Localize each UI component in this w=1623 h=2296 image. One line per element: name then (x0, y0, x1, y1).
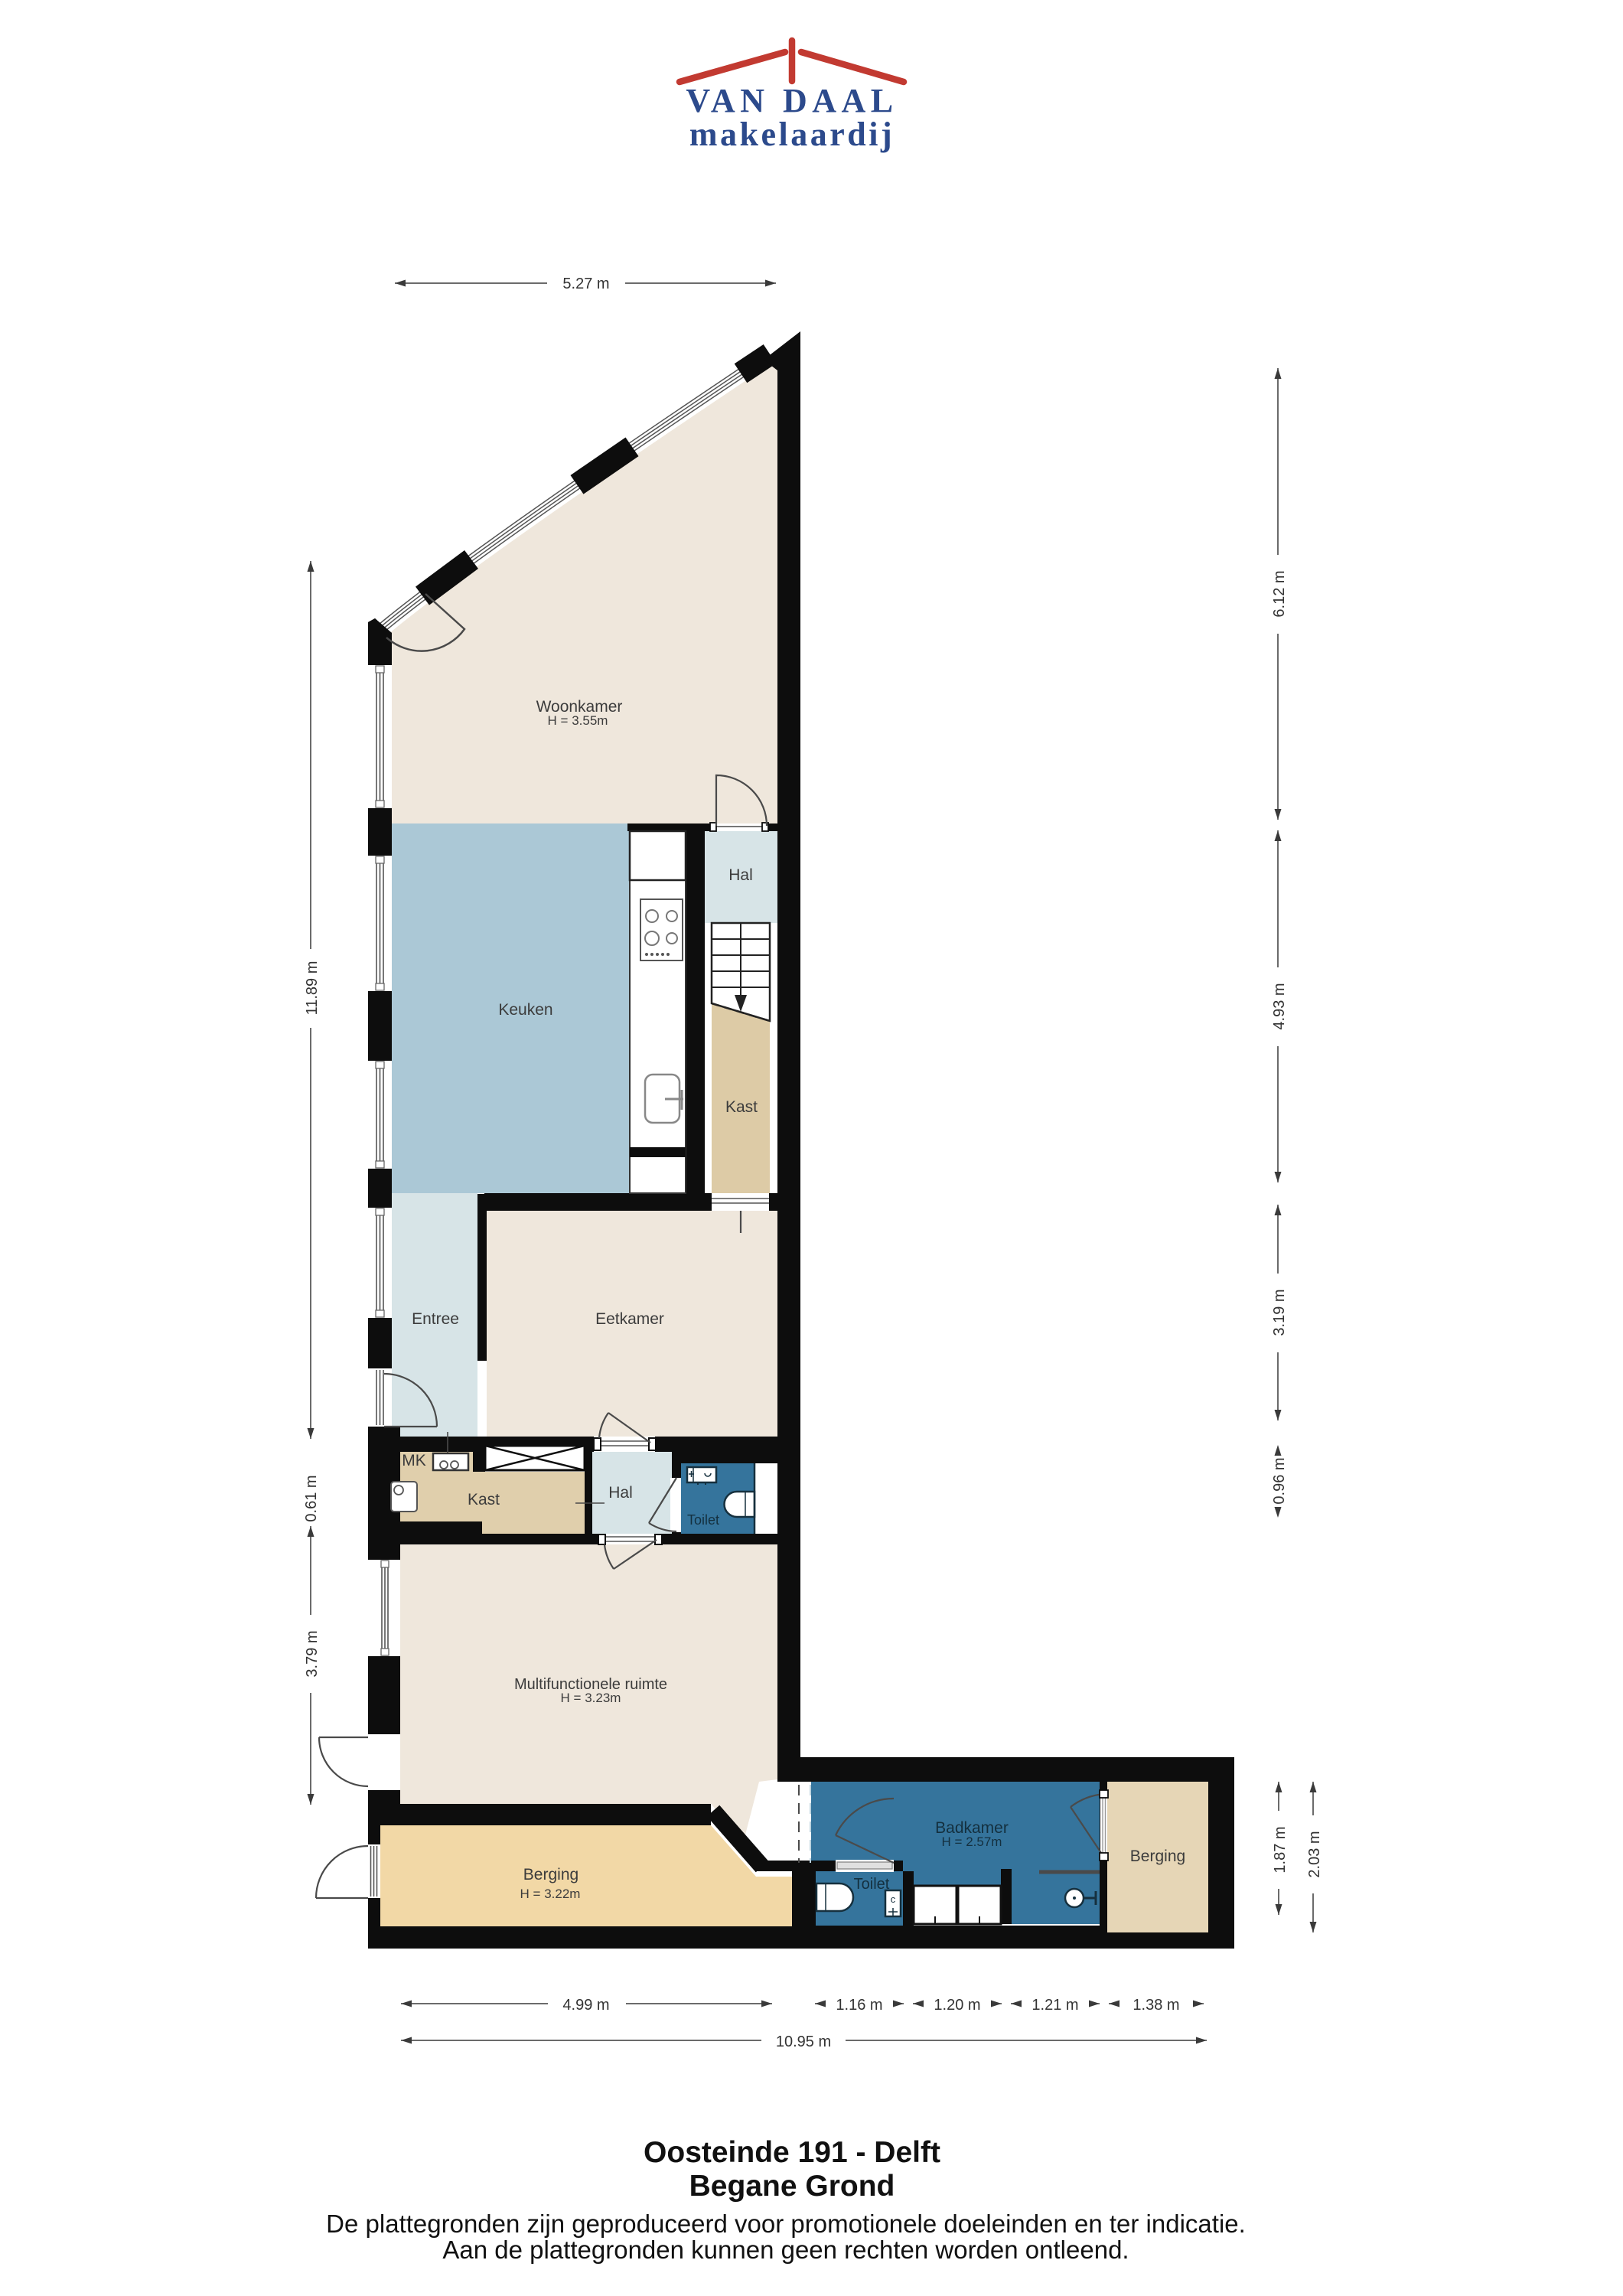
svg-text:5.27 m: 5.27 m (562, 276, 609, 292)
svg-text:Eetkamer: Eetkamer (595, 1310, 664, 1328)
svg-text:6.12 m: 6.12 m (1271, 570, 1288, 617)
svg-text:2.03 m: 2.03 m (1306, 1831, 1323, 1877)
svg-text:3.79 m: 3.79 m (304, 1630, 321, 1677)
svg-text:0.96 m: 0.96 m (1271, 1457, 1288, 1504)
svg-text:VAN DAAL: VAN DAAL (686, 82, 898, 119)
svg-text:Aan de plattegronden kunnen ge: Aan de plattegronden kunnen geen rechten… (442, 2236, 1129, 2264)
svg-text:1.87 m: 1.87 m (1272, 1826, 1289, 1873)
svg-text:Berging: Berging (1130, 1848, 1185, 1865)
svg-text:H = 3.55m: H = 3.55m (548, 713, 608, 728)
svg-text:H = 3.23m: H = 3.23m (561, 1691, 621, 1705)
svg-text:10.95 m: 10.95 m (776, 2033, 831, 2050)
svg-text:Kast: Kast (725, 1098, 758, 1116)
svg-text:1.20 m: 1.20 m (934, 1997, 980, 2014)
svg-text:Toilet: Toilet (854, 1876, 890, 1893)
svg-text:0.61 m: 0.61 m (303, 1475, 320, 1521)
svg-text:11.89 m: 11.89 m (304, 961, 321, 1016)
svg-text:Entree: Entree (412, 1310, 459, 1328)
svg-text:1.21 m: 1.21 m (1031, 1997, 1078, 2014)
svg-text:Kast: Kast (468, 1491, 500, 1508)
svg-text:De plattegronden zijn geproduc: De plattegronden zijn geproduceerd voor … (326, 2210, 1246, 2238)
svg-text:1.16 m: 1.16 m (836, 1997, 882, 2014)
svg-text:Berging: Berging (523, 1866, 578, 1883)
svg-text:Keuken: Keuken (498, 1001, 552, 1019)
svg-text:Begane Grond: Begane Grond (689, 2170, 895, 2203)
svg-text:1.38 m: 1.38 m (1133, 1997, 1179, 2014)
svg-text:Toilet: Toilet (687, 1512, 719, 1528)
svg-text:H = 3.22m: H = 3.22m (520, 1887, 581, 1901)
svg-text:Hal: Hal (608, 1484, 633, 1502)
svg-text:MK: MK (402, 1452, 426, 1469)
svg-text:H = 2.57m: H = 2.57m (942, 1835, 1002, 1849)
svg-text:c: c (891, 1893, 896, 1905)
svg-text:Oosteinde 191 - Delft: Oosteinde 191 - Delft (644, 2136, 940, 2169)
svg-text:3.19 m: 3.19 m (1271, 1289, 1288, 1336)
svg-text:4.93 m: 4.93 m (1271, 983, 1288, 1029)
svg-text:makelaardij: makelaardij (689, 116, 895, 153)
svg-text:Hal: Hal (728, 866, 753, 884)
svg-text:4.99 m: 4.99 m (562, 1997, 609, 2014)
